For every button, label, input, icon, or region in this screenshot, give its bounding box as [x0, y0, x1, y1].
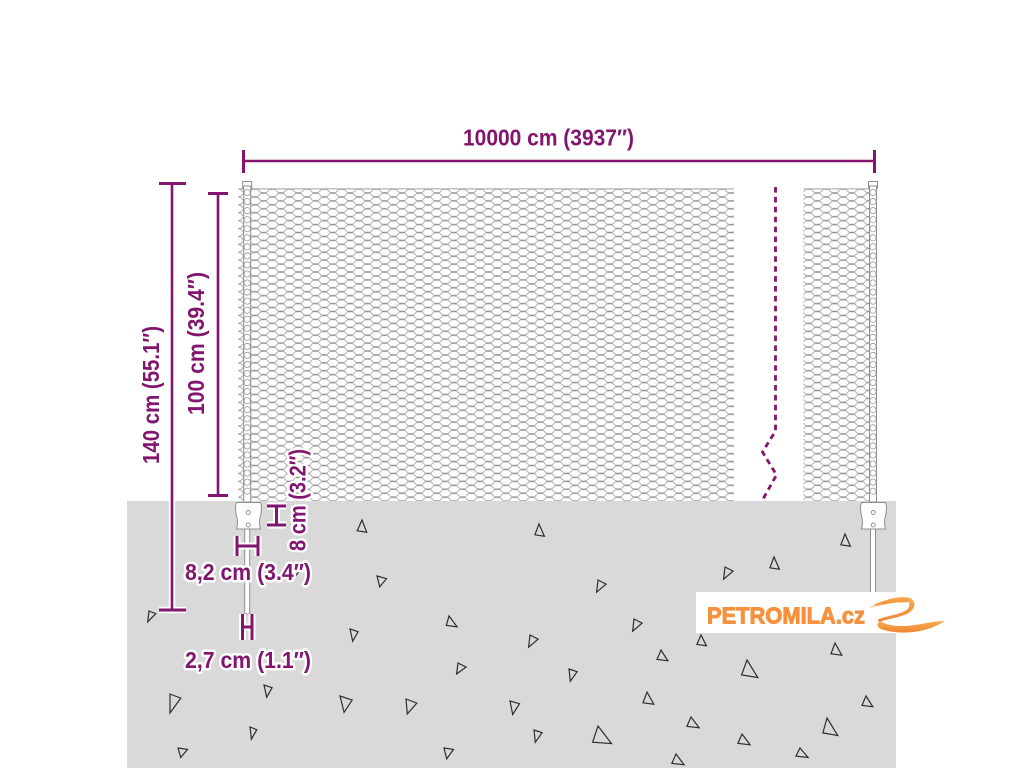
svg-text:PETROMILA.cz: PETROMILA.cz	[707, 603, 865, 629]
svg-text:100 cm (39.4″): 100 cm (39.4″)	[183, 272, 209, 415]
svg-text:8 cm (3.2″): 8 cm (3.2″)	[285, 449, 311, 551]
svg-text:10000 cm (3937″): 10000 cm (3937″)	[463, 125, 634, 151]
svg-text:8,2 cm (3.4″): 8,2 cm (3.4″)	[185, 559, 311, 585]
svg-text:140 cm (55.1″): 140 cm (55.1″)	[138, 326, 164, 464]
svg-text:2,7 cm (1.1″): 2,7 cm (1.1″)	[185, 647, 311, 673]
